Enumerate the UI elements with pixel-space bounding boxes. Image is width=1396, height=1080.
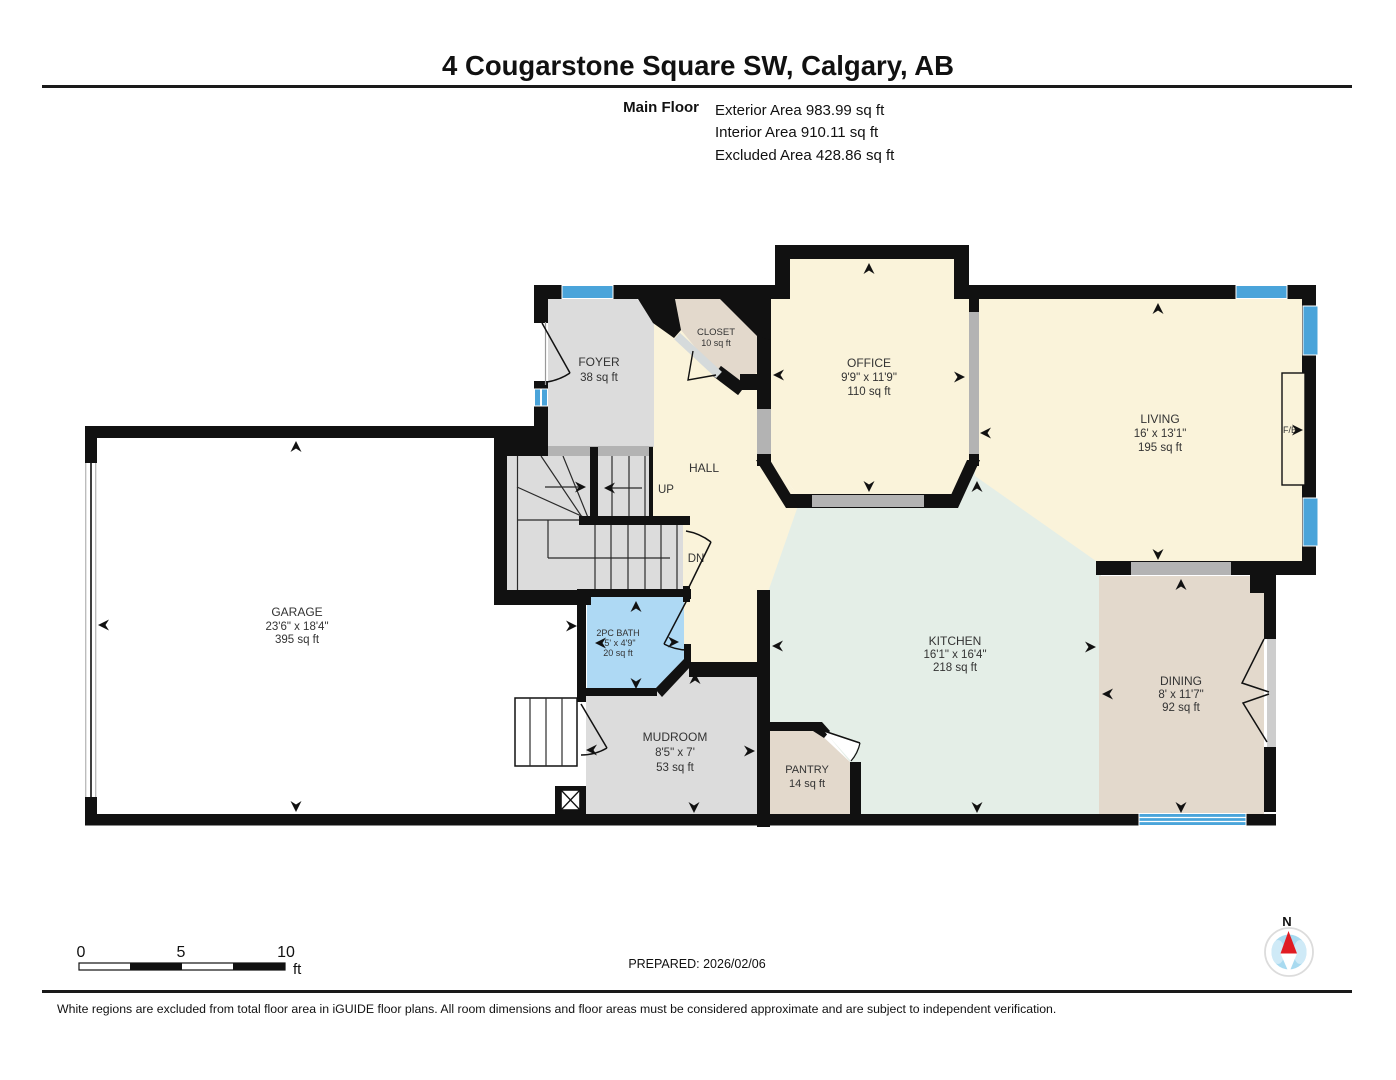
svg-text:53 sq ft: 53 sq ft	[656, 762, 695, 774]
svg-text:218 sq ft: 218 sq ft	[933, 662, 978, 674]
svg-text:195 sq ft: 195 sq ft	[1138, 442, 1183, 454]
svg-text:10: 10	[277, 944, 295, 961]
svg-text:16' x 13'1": 16' x 13'1"	[1134, 428, 1187, 440]
svg-text:5: 5	[177, 944, 186, 961]
svg-text:395 sq ft: 395 sq ft	[275, 634, 320, 646]
svg-text:8' x 11'7": 8' x 11'7"	[1158, 689, 1203, 701]
svg-text:FOYER: FOYER	[578, 355, 620, 369]
svg-text:110 sq ft: 110 sq ft	[847, 386, 891, 398]
svg-text:HALL: HALL	[689, 461, 719, 475]
svg-text:PANTRY: PANTRY	[785, 764, 829, 776]
svg-text:ft: ft	[293, 961, 302, 978]
svg-text:LIVING: LIVING	[1140, 412, 1179, 426]
svg-text:9'9" x 11'9": 9'9" x 11'9"	[841, 372, 897, 384]
svg-text:20 sq ft: 20 sq ft	[603, 648, 633, 658]
svg-text:10 sq ft: 10 sq ft	[701, 338, 731, 348]
svg-text:GARAGE: GARAGE	[271, 605, 322, 619]
svg-text:14 sq ft: 14 sq ft	[789, 778, 825, 790]
svg-text:2PC BATH: 2PC BATH	[596, 628, 639, 638]
svg-text:38 sq ft: 38 sq ft	[580, 372, 619, 384]
svg-text:N: N	[1282, 914, 1291, 929]
svg-text:OFFICE: OFFICE	[847, 356, 891, 370]
svg-text:KITCHEN: KITCHEN	[929, 634, 982, 648]
svg-text:DN: DN	[688, 553, 705, 565]
svg-text:16'1" x 16'4": 16'1" x 16'4"	[923, 649, 986, 661]
svg-text:0: 0	[77, 944, 86, 961]
svg-text:UP: UP	[658, 484, 674, 496]
svg-text:MUDROOM: MUDROOM	[643, 730, 708, 744]
svg-text:8'5" x 7': 8'5" x 7'	[655, 747, 695, 759]
svg-text:PREPARED: 2026/02/06: PREPARED: 2026/02/06	[628, 957, 765, 971]
svg-text:DINING: DINING	[1160, 674, 1202, 688]
svg-text:5' x 4'9": 5' x 4'9"	[604, 638, 635, 648]
svg-text:23'6" x 18'4": 23'6" x 18'4"	[265, 621, 328, 633]
svg-text:92 sq ft: 92 sq ft	[1162, 702, 1201, 714]
svg-text:CLOSET: CLOSET	[697, 327, 735, 338]
